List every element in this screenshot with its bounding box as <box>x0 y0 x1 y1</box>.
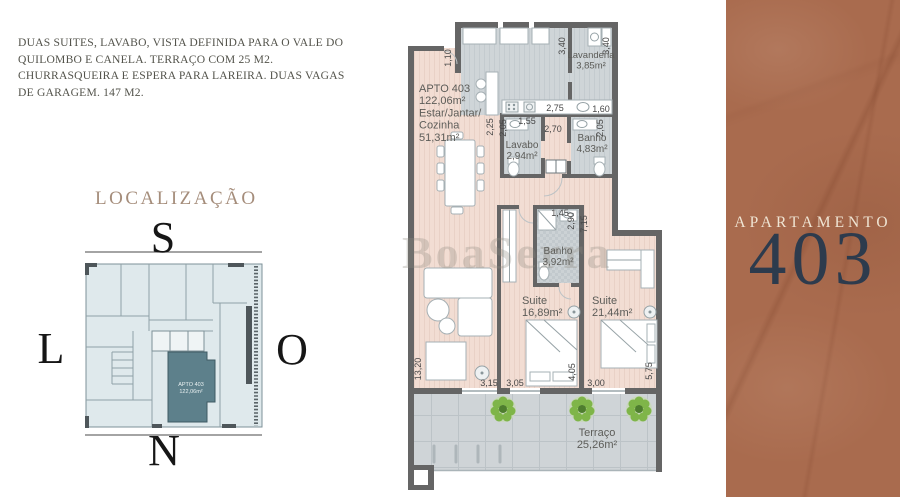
compass-west: O <box>270 328 314 372</box>
room-label: Terraço25,26m² <box>577 427 618 451</box>
localizacao-title: LOCALIZAÇÃO <box>95 188 258 210</box>
dimension-label: 2,90 <box>566 212 576 230</box>
dimension-label: 7,15 <box>579 215 589 233</box>
dimension-label: 1,55 <box>518 116 536 126</box>
page: { "description": { "line1": "DUAS SUITES… <box>0 0 900 497</box>
dimension-label: 3,15 <box>480 378 498 388</box>
dimension-label: 2,75 <box>546 103 564 113</box>
tv-rack <box>426 342 466 380</box>
highlighted-unit-area: 122,06m² <box>179 389 202 395</box>
highlighted-unit-label: APTO 403 <box>178 382 204 388</box>
dimension-label: 2,25 <box>485 118 495 136</box>
compass-north: N <box>142 429 186 473</box>
terrace-floor <box>414 394 656 470</box>
room-label: Banho3,92m² <box>542 246 574 268</box>
dimension-label: 5,75 <box>644 362 654 380</box>
plant-icon <box>569 396 595 422</box>
dimension-label: 2,05 <box>498 119 508 137</box>
compass-east: L <box>29 327 73 371</box>
panel-number: 403 <box>726 221 900 297</box>
closet <box>532 28 549 44</box>
dimension-label: 3,00 <box>587 378 605 388</box>
compass-south: S <box>141 216 185 260</box>
dimension-label: 4,05 <box>567 363 577 381</box>
dimension-label: 1,60 <box>592 104 610 114</box>
description-line: CHURRASQUEIRA E ESPERA PARA LAREIRA. DUA… <box>18 68 344 85</box>
description-block: DUAS SUITES, LAVABO, VISTA DEFINIDA PARA… <box>18 35 344 101</box>
toilet <box>594 162 605 176</box>
hall-cabinet <box>546 160 556 173</box>
dimension-label: 1,10 <box>443 49 453 67</box>
dimension-label: 3,05 <box>506 378 524 388</box>
dimension-label: 2,05 <box>595 119 605 137</box>
kitchen-island <box>486 72 498 115</box>
apartment-panel: APARTAMENTO 403 <box>726 0 900 497</box>
description-line: DUAS SUITES, LAVABO, VISTA DEFINIDA PARA… <box>18 35 344 52</box>
dining-table <box>445 140 475 206</box>
side-table <box>439 318 455 334</box>
watermark: BoaSerra <box>402 227 613 278</box>
room-label: Lavabo2,94m² <box>506 140 539 162</box>
description-line: QUILOMBO E CANELA. TERRAÇO COM 25 M2. <box>18 52 344 69</box>
elevator-core <box>152 331 204 351</box>
location-mini-plan: APTO 403 122,06m² <box>85 252 262 435</box>
dimension-label: 3,40 <box>601 37 611 55</box>
toilet <box>508 162 519 176</box>
sofa-chaise <box>458 298 492 336</box>
wardrobe <box>641 250 654 288</box>
plant-icon <box>490 396 516 422</box>
hall-cabinet <box>556 160 566 173</box>
dimension-label: 3,40 <box>557 37 567 55</box>
stove-icon <box>506 102 518 112</box>
dimension-label: 2,70 <box>544 124 562 134</box>
plant-icon <box>626 396 652 422</box>
description-line: DE GARAGEM. 147 M2. <box>18 85 344 102</box>
washing-machine <box>588 28 601 46</box>
floorplan: BoaSerra APTO 403122,06m²Estar/Jantar/Co… <box>402 22 662 490</box>
dimension-label: 13,20 <box>413 358 423 381</box>
closet <box>463 28 496 44</box>
closet <box>500 28 528 44</box>
